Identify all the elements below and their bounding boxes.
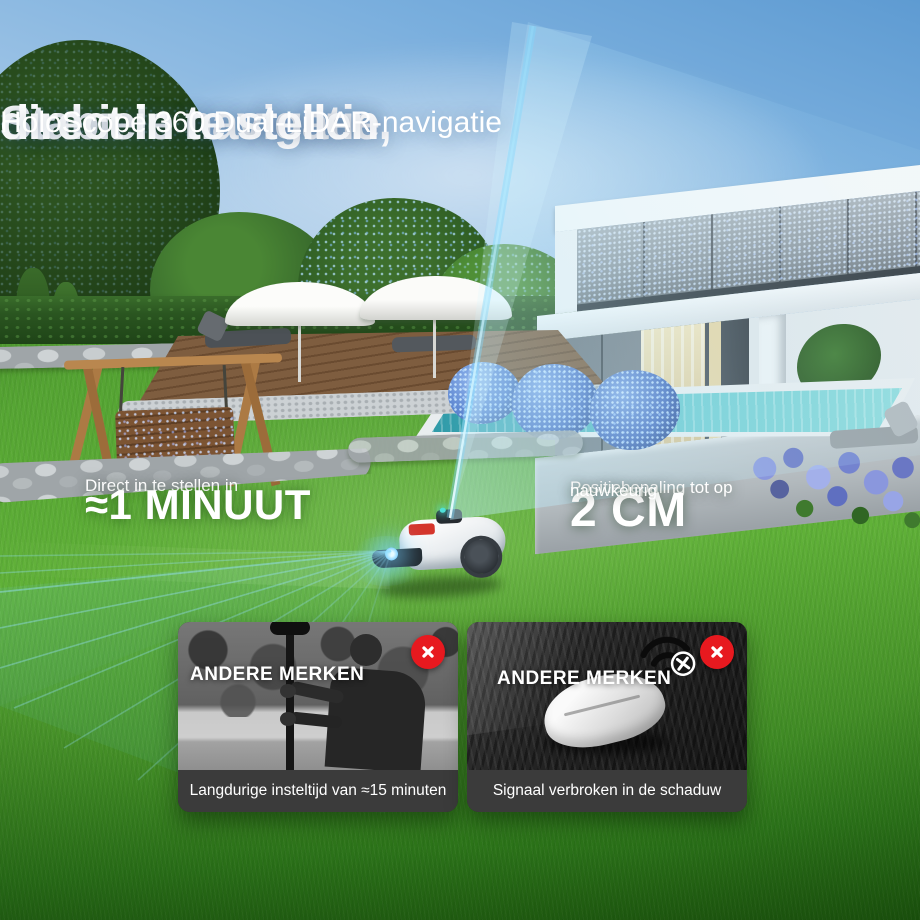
product-marketing-image: Stabiele navigatie, direct in te stellen…: [0, 0, 920, 920]
person-hand: [280, 712, 296, 726]
card-tag: ANDERE MERKEN: [497, 668, 671, 690]
mower-stop-button: [408, 523, 435, 535]
comparison-card-signal: ANDERE MERKEN Signaal verbroken in de sc…: [467, 622, 747, 812]
x-circle-icon: [700, 635, 734, 669]
rtk-pole: [286, 626, 294, 770]
person-head: [350, 634, 382, 666]
person-hand: [280, 684, 296, 698]
antenna-head: [270, 622, 310, 635]
umbrella-pole: [298, 322, 301, 382]
umbrella-pole: [433, 316, 436, 378]
robot-mower: [364, 501, 514, 603]
comparison-card-setup: ANDERE MERKEN Langdurige insteltijd van …: [178, 622, 458, 812]
card-caption: Signaal verbroken in de schaduw: [467, 770, 747, 812]
hydrangea-flowers: [742, 429, 920, 538]
mower-shadow: [377, 574, 502, 600]
balcony-pillar: [555, 230, 577, 314]
stat-note: nauwkeurig: [570, 481, 657, 501]
card-caption: Langdurige insteltijd van ≈15 minuten: [178, 770, 458, 812]
subtitle: HoloScope 360 Dual-LiDAR-navigatie: [0, 106, 502, 140]
x-circle-icon: [411, 635, 445, 669]
stat-value: ≈1 MINUUT: [85, 481, 311, 529]
card-tag: ANDERE MERKEN: [190, 664, 364, 686]
